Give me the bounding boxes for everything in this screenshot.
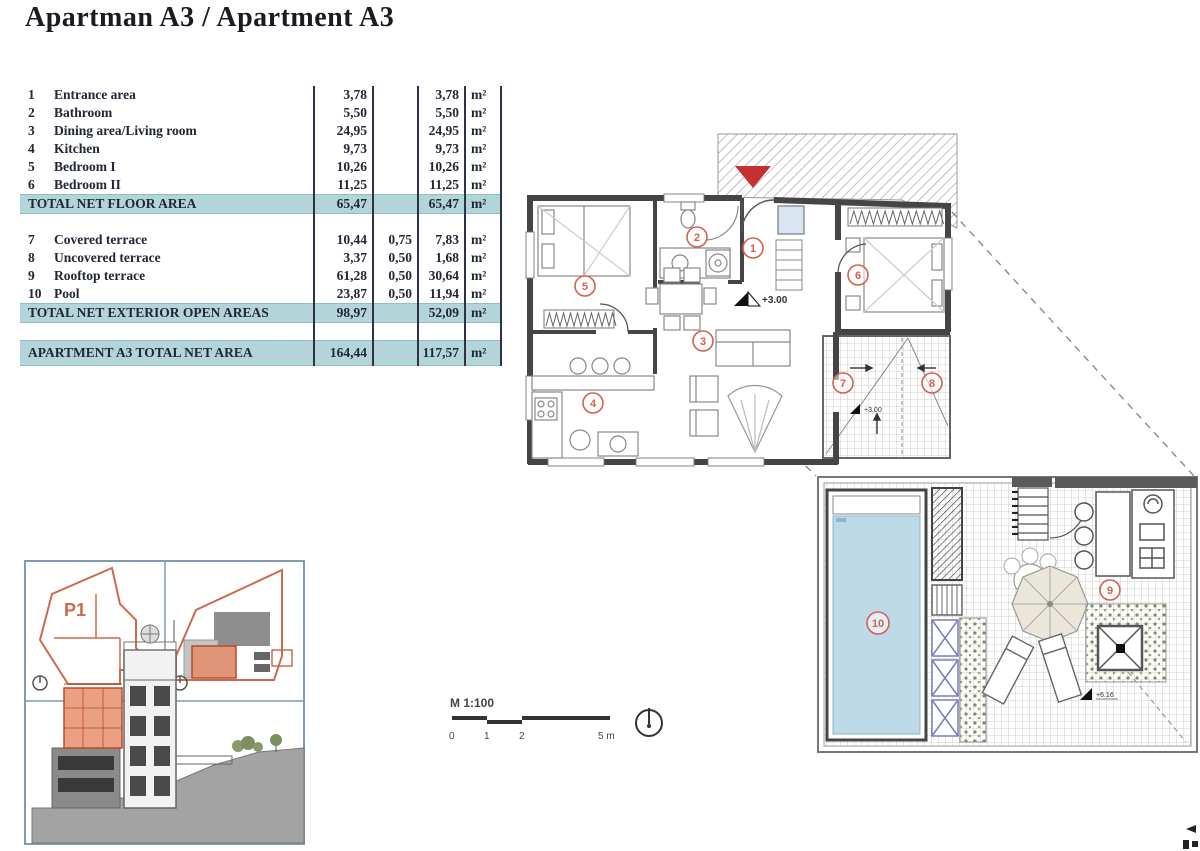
bedroom2-wardrobe [848,208,944,226]
svg-text:5 m: 5 m [598,731,615,742]
svg-text:5: 5 [582,281,588,293]
room-label-9: 9 [1100,580,1120,600]
room-label-1: 1 [743,238,763,258]
room-label-6: 6 [848,265,868,285]
room-label-3: 3 [693,331,713,351]
apartment-total-row: APARTMENT A3 TOTAL NET AREA 164,44 117,5… [20,341,501,366]
table-row: 7 Covered terrace 10,44 0,75 7,83 m² [20,231,501,249]
svg-text:+6.16: +6.16 [1096,692,1114,699]
scale-bar: M 1:100 0 1 2 5 m [449,696,615,742]
svg-text:0: 0 [449,731,455,742]
rooftop-railing [1055,477,1197,488]
svg-text:9: 9 [1107,585,1113,597]
svg-text:2: 2 [519,731,525,742]
page-title: Apartman A3 / Apartment A3 [25,2,394,34]
room-label-7: 7 [833,373,853,393]
svg-text:1: 1 [750,243,756,255]
total-net-exterior-row: TOTAL NET EXTERIOR OPEN AREAS 98,97 52,0… [20,304,501,323]
room-label-2: 2 [687,227,707,247]
plan-sheet-page: { "title": "Apartman A3 / Apartment A3",… [0,0,1200,851]
parcel-label: P1 [64,600,86,620]
bedroom1-radiator [544,310,616,328]
table-row: 6 Bedroom II 11,25 11,25 m² [20,176,501,195]
pergola-planter [932,488,962,580]
table-row: 8 Uncovered terrace 3,37 0,50 1,68 m² [20,249,501,267]
table-row: 2 Bathroom 5,50 5,50 m² [20,104,501,122]
deck-grate [932,585,962,615]
room-label-10: 10 [867,612,889,634]
svg-text:4: 4 [590,398,597,410]
svg-text:7: 7 [840,378,846,390]
greenery-strip [960,618,986,742]
highlighted-apartment [64,684,122,748]
bedroom1-furniture [538,206,630,276]
table-row: 9 Rooftop terrace 61,28 0,50 30,64 m² [20,267,501,285]
table-row: 3 Dining area/Living room 24,95 24,95 m² [20,122,501,140]
table-row: 1 Entrance area 3,78 3,78 m² [20,86,501,104]
svg-text:+3.00: +3.00 [762,295,788,306]
table-row: 4 Kitchen 9,73 9,73 m² [20,140,501,158]
location-inset: P1 [24,560,305,845]
svg-text:M 1:100: M 1:100 [450,696,494,710]
svg-text:10: 10 [872,618,884,630]
table-spacer [20,323,501,341]
entry-shelves [776,240,802,290]
table-row: 10 Pool 23,87 0,50 11,94 m² [20,285,501,304]
table-spacer [20,214,501,232]
room-label-8: 8 [922,373,942,393]
room-label-5: 5 [575,276,595,296]
total-net-floor-area-row: TOTAL NET FLOOR AREA 65,47 65,47 m² [20,195,501,214]
svg-text:3: 3 [700,336,706,348]
planter-boxes [932,620,958,736]
main-floor-plan: +3.00 +3.00 [526,166,952,466]
svg-text:6: 6 [855,270,861,282]
svg-text:2: 2 [694,232,700,244]
svg-text:1: 1 [484,731,490,742]
room-label-4: 4 [583,393,603,413]
area-table: 1 Entrance area 3,78 3,78 m² 2 Bathroom … [20,86,502,366]
table-row: 5 Bedroom I 10,26 10,26 m² [20,158,501,176]
floor-plan-drawing: +3.00 +3.00 [440,120,1200,851]
page-corner-marks [1183,825,1198,849]
svg-text:+3.00: +3.00 [864,407,882,414]
north-icon [636,708,662,736]
entry-closet [778,206,804,234]
svg-text:8: 8 [929,378,935,390]
tree-planter [1086,604,1166,682]
